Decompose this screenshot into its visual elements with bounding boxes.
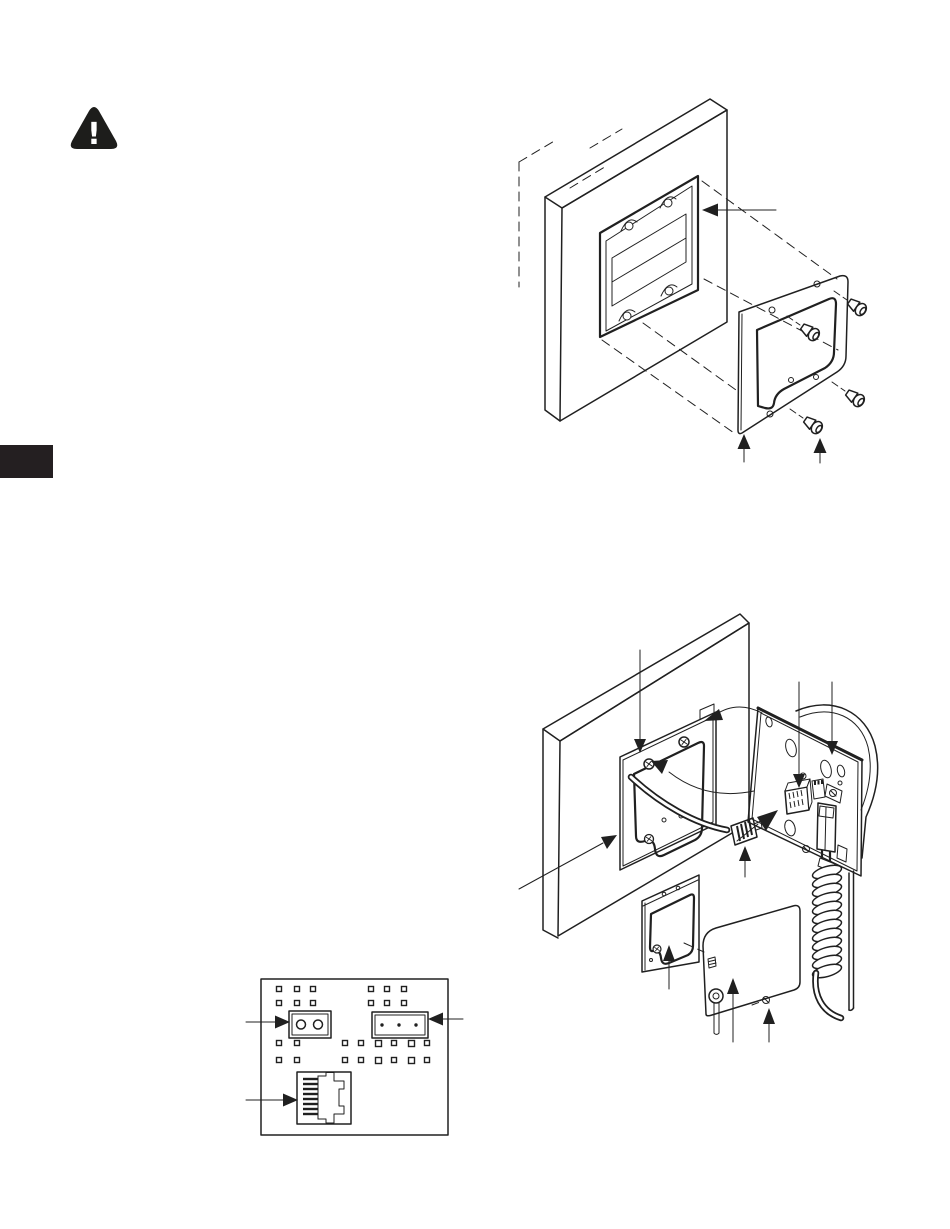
adapter-frame (620, 704, 716, 870)
manual-page: ! (0, 0, 950, 1229)
figure-2-callout-arrows (519, 650, 838, 1042)
left-edge-section-tab (0, 445, 53, 478)
cover-plate (703, 906, 800, 1035)
figure-2-assembly-view (519, 614, 878, 1042)
wall-with-cutout (545, 99, 727, 421)
rj45-jack-footprint (297, 1072, 351, 1124)
3-position-connector (372, 1012, 428, 1038)
warning-exclamation: ! (87, 117, 101, 152)
exploded-projection-lines (602, 181, 838, 433)
warning-triangle-icon: ! (71, 107, 117, 152)
solder-pads (277, 987, 430, 1064)
coiled-handset-cord (811, 845, 853, 1018)
2-position-connector (289, 1011, 331, 1038)
wall (543, 614, 749, 938)
recessed-electrical-box (600, 176, 698, 337)
figure-1-wall-box-exploded-view (519, 99, 869, 463)
pull-knob (709, 989, 723, 1003)
hidden-wall-outline-dashes (519, 129, 622, 287)
page-artwork: ! (0, 0, 950, 1229)
figure-3-pcb-detail (246, 979, 463, 1135)
mounting-frame-plate (738, 276, 848, 434)
cover-label (708, 957, 716, 968)
circuit-board (261, 979, 448, 1135)
